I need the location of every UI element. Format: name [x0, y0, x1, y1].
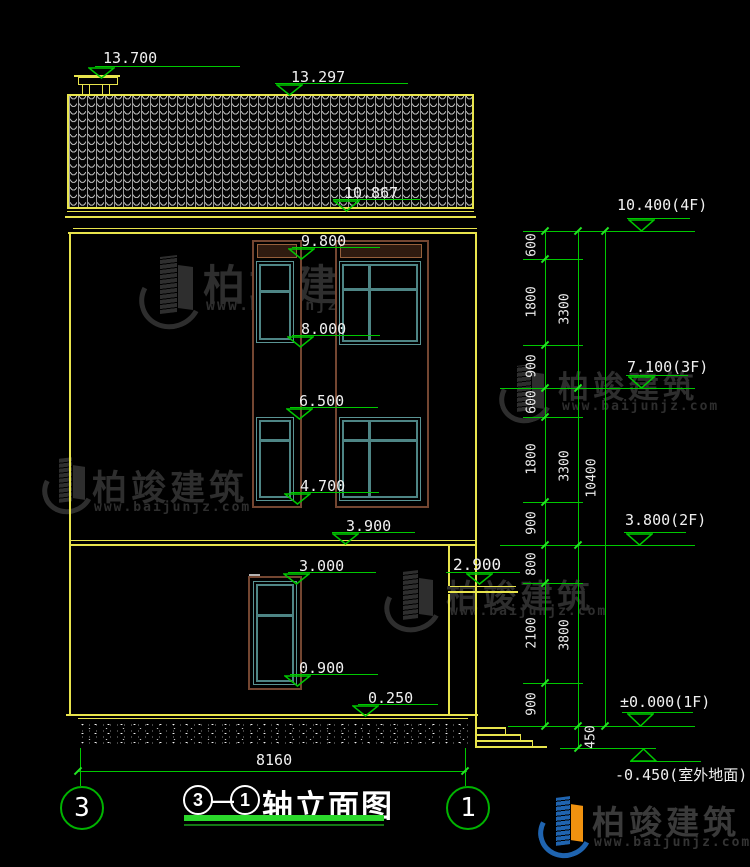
- dim-chain-line: [605, 231, 606, 726]
- plinth-second-line: [78, 718, 468, 719]
- dim-text: 2100: [525, 617, 540, 648]
- dim-line: [523, 259, 583, 260]
- dim-text: 450: [584, 725, 599, 748]
- level-text: 13.700: [103, 49, 157, 67]
- elevation-drawing-canvas: 柏竣建筑 www.baijunjz.com 柏竣建筑 www.baijunjz.…: [0, 0, 750, 867]
- window-3f-left: [256, 261, 294, 343]
- axis-bubble-1: 1: [446, 786, 490, 830]
- dim-text: 800: [525, 552, 540, 575]
- title-axis-circle-1: 1: [230, 785, 260, 815]
- title-underline-thick: [184, 815, 384, 821]
- dim-text: 900: [525, 354, 540, 377]
- title-axis-circle-3: 3: [183, 785, 213, 815]
- dim-text: 3800: [558, 619, 573, 650]
- level-triangle-icon: [333, 200, 360, 212]
- brand-site: www.baijunjz.com: [594, 835, 750, 850]
- step-line: [477, 746, 547, 748]
- dim-text: 1800: [525, 443, 540, 474]
- dim-line: [523, 345, 583, 346]
- window-pane: [344, 422, 368, 439]
- level-triangle-icon: [628, 376, 655, 389]
- porch-edge-lower: [448, 594, 450, 714]
- dim-text: 600: [525, 390, 540, 413]
- window-pane: [371, 422, 416, 439]
- dim-text: 8160: [256, 751, 292, 769]
- dim-line: [523, 417, 583, 418]
- dim-line: [500, 545, 695, 546]
- level-triangle-icon: [284, 675, 311, 687]
- title-underline-thin: [184, 824, 384, 826]
- floor-level-text: 10.400(4F): [617, 196, 707, 214]
- watermark-logo-icon: [46, 458, 90, 512]
- window-pane: [344, 442, 368, 496]
- tiled-roof: [67, 94, 474, 209]
- fascia-line-upper: [67, 211, 474, 212]
- canopy-top-line: [450, 586, 516, 587]
- level-triangle-icon: [466, 573, 493, 585]
- level-triangle-up-icon: [630, 748, 657, 762]
- floor-level-text: -0.450(室外地面): [615, 764, 747, 785]
- window-2f-left: [256, 417, 294, 501]
- window-pane: [261, 422, 289, 439]
- window-1f: [253, 581, 297, 685]
- wall-top-line: [68, 232, 477, 234]
- step-line: [477, 734, 521, 736]
- floor-band-line: [71, 544, 475, 546]
- canopy-line: [448, 591, 518, 593]
- wall-left-edge: [69, 234, 71, 714]
- level-triangle-icon: [627, 713, 654, 727]
- window-pane: [344, 291, 368, 340]
- dim-text: 3300: [558, 450, 573, 481]
- level-triangle-icon: [283, 573, 310, 585]
- window-pane: [258, 617, 292, 680]
- window-pane: [261, 266, 289, 290]
- dim-text: 10400: [585, 458, 600, 497]
- watermark-site: www.baijunjz.com: [94, 500, 251, 515]
- dim-line: [523, 583, 583, 584]
- porch-edge-upper: [448, 546, 450, 586]
- dim-text: 600: [525, 233, 540, 256]
- window-pane: [344, 266, 368, 288]
- level-triangle-icon: [332, 533, 359, 545]
- window-pane: [371, 266, 416, 288]
- level-triangle-icon: [88, 67, 115, 79]
- fascia-line-lower: [65, 216, 476, 218]
- watermark-logo-icon: [143, 256, 199, 326]
- level-triangle-icon: [288, 248, 315, 260]
- window-pane: [371, 291, 416, 340]
- dim-line: [500, 388, 695, 389]
- wall-top-thin-line: [73, 228, 477, 229]
- foundation-hatch: [76, 720, 470, 747]
- wall-right-edge: [475, 234, 477, 748]
- level-triangle-icon: [626, 533, 653, 546]
- level-triangle-icon: [287, 336, 314, 348]
- axis-bubble-3: 3: [60, 786, 104, 830]
- level-line: [630, 761, 701, 762]
- window-pane: [261, 442, 289, 496]
- level-triangle-icon: [276, 84, 303, 96]
- watermark-logo-icon: [388, 571, 438, 629]
- level-triangle-icon: [628, 219, 655, 232]
- step-line: [477, 727, 505, 729]
- floor-band-thin-line: [71, 540, 475, 541]
- dim-chain-line: [578, 231, 579, 748]
- window-pane: [261, 293, 289, 338]
- dim-text: 3300: [558, 293, 573, 324]
- dim-line: [523, 231, 695, 232]
- level-triangle-icon: [284, 493, 311, 505]
- dim-line: [523, 502, 583, 503]
- dim-line: [78, 771, 467, 772]
- floor-level-text: ±0.000(1F): [620, 693, 710, 711]
- watermark-site: www.baijunjz.com: [562, 399, 719, 414]
- plinth-top-line: [66, 714, 478, 716]
- level-triangle-icon: [286, 408, 313, 420]
- tiny-annotation: [249, 574, 260, 576]
- brand-logo-icon: [542, 797, 588, 855]
- level-line: [95, 66, 240, 67]
- dim-text: 1800: [525, 286, 540, 317]
- dim-line: [523, 683, 583, 684]
- dim-text: 900: [525, 511, 540, 534]
- step-line: [477, 740, 533, 742]
- dim-chain-line: [545, 231, 546, 726]
- window-2f-right: [339, 417, 421, 501]
- level-triangle-icon: [352, 705, 379, 717]
- floor-level-text: 7.100(3F): [627, 358, 708, 376]
- window-pane: [258, 586, 292, 614]
- dim-text: 900: [525, 692, 540, 715]
- window-3f-right: [339, 261, 421, 345]
- floor-level-text: 3.800(2F): [625, 511, 706, 529]
- window-pane: [371, 442, 416, 496]
